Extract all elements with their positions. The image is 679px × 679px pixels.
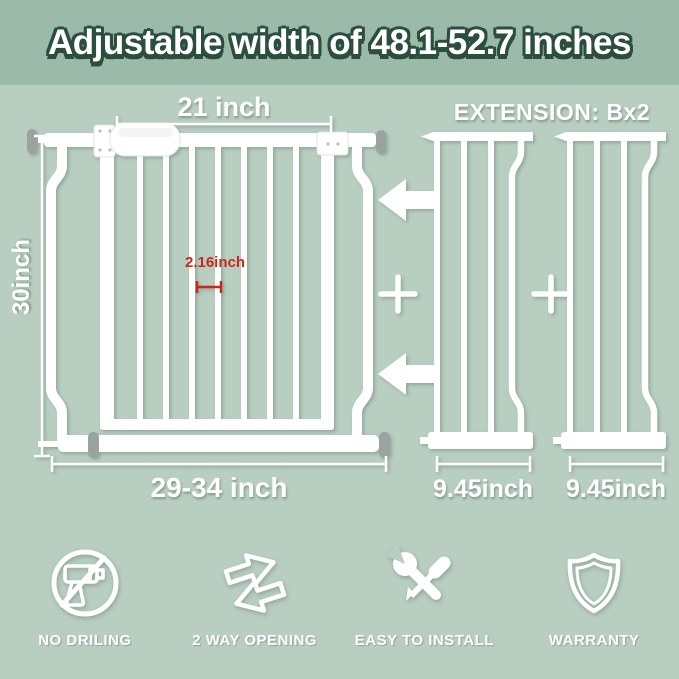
feature-warranty: WARRANTY bbox=[509, 543, 679, 649]
extension-heading: EXTENSION: Bx2 bbox=[432, 99, 672, 126]
feature-label: WARRANTY bbox=[549, 632, 640, 649]
no-drilling-icon bbox=[45, 543, 125, 623]
feature-easy-install: EASY TO INSTALL bbox=[340, 543, 510, 649]
extension-panel bbox=[553, 132, 666, 449]
extension2-width-label: 9.45inch bbox=[556, 475, 676, 504]
adjustable-width-label: 29-34 inch bbox=[119, 472, 319, 504]
gate-handle bbox=[110, 123, 180, 156]
main-gate-illustration bbox=[27, 123, 390, 458]
door-latch-post bbox=[321, 147, 334, 429]
extension-panel bbox=[420, 132, 533, 449]
two-way-opening-icon bbox=[215, 543, 295, 623]
extension-bottom-rail bbox=[428, 432, 533, 449]
feature-label: EASY TO INSTALL bbox=[355, 632, 494, 649]
feature-label: 2 WAY OPENING bbox=[192, 632, 317, 649]
extension1-width-label: 9.45inch bbox=[423, 475, 543, 504]
gate-height-label: 30inch bbox=[8, 238, 36, 316]
feature-row: NO DRILING 2 WAY OPENING EASY TO INSTALL bbox=[0, 543, 679, 649]
plus-signs bbox=[381, 277, 568, 311]
bar-gap-label: 2.16inch bbox=[155, 254, 275, 271]
left-arrow-icon bbox=[378, 353, 436, 395]
screw-stem bbox=[38, 441, 94, 447]
screw-knob-icon bbox=[27, 129, 37, 154]
door-hinge-post bbox=[100, 147, 114, 429]
handle-highlight bbox=[118, 128, 173, 137]
gate-left-frame bbox=[51, 147, 62, 440]
plus-icon bbox=[534, 277, 568, 311]
plus-icon bbox=[381, 277, 415, 311]
door-width-label: 21 inch bbox=[124, 92, 324, 123]
feature-two-way-opening: 2 WAY OPENING bbox=[170, 543, 340, 649]
warranty-shield-icon bbox=[554, 543, 634, 623]
product-infographic: Adjustable width of 48.1-52.7 inches bbox=[0, 0, 679, 679]
extension-top-rail bbox=[421, 132, 533, 141]
screw-knob-icon bbox=[376, 130, 386, 154]
gate-right-frame bbox=[357, 147, 368, 440]
left-arrow-icon bbox=[378, 179, 436, 221]
feature-label: NO DRILING bbox=[38, 632, 131, 649]
attach-arrows bbox=[378, 179, 436, 395]
feature-no-drilling: NO DRILING bbox=[0, 543, 170, 649]
gate-bottom-rail bbox=[58, 435, 379, 452]
door-bottom-rail bbox=[100, 419, 334, 430]
easy-install-icon bbox=[384, 543, 464, 623]
screw-knob-icon bbox=[88, 432, 99, 458]
latch-block bbox=[317, 132, 348, 155]
screw-knob-icon bbox=[379, 432, 390, 458]
